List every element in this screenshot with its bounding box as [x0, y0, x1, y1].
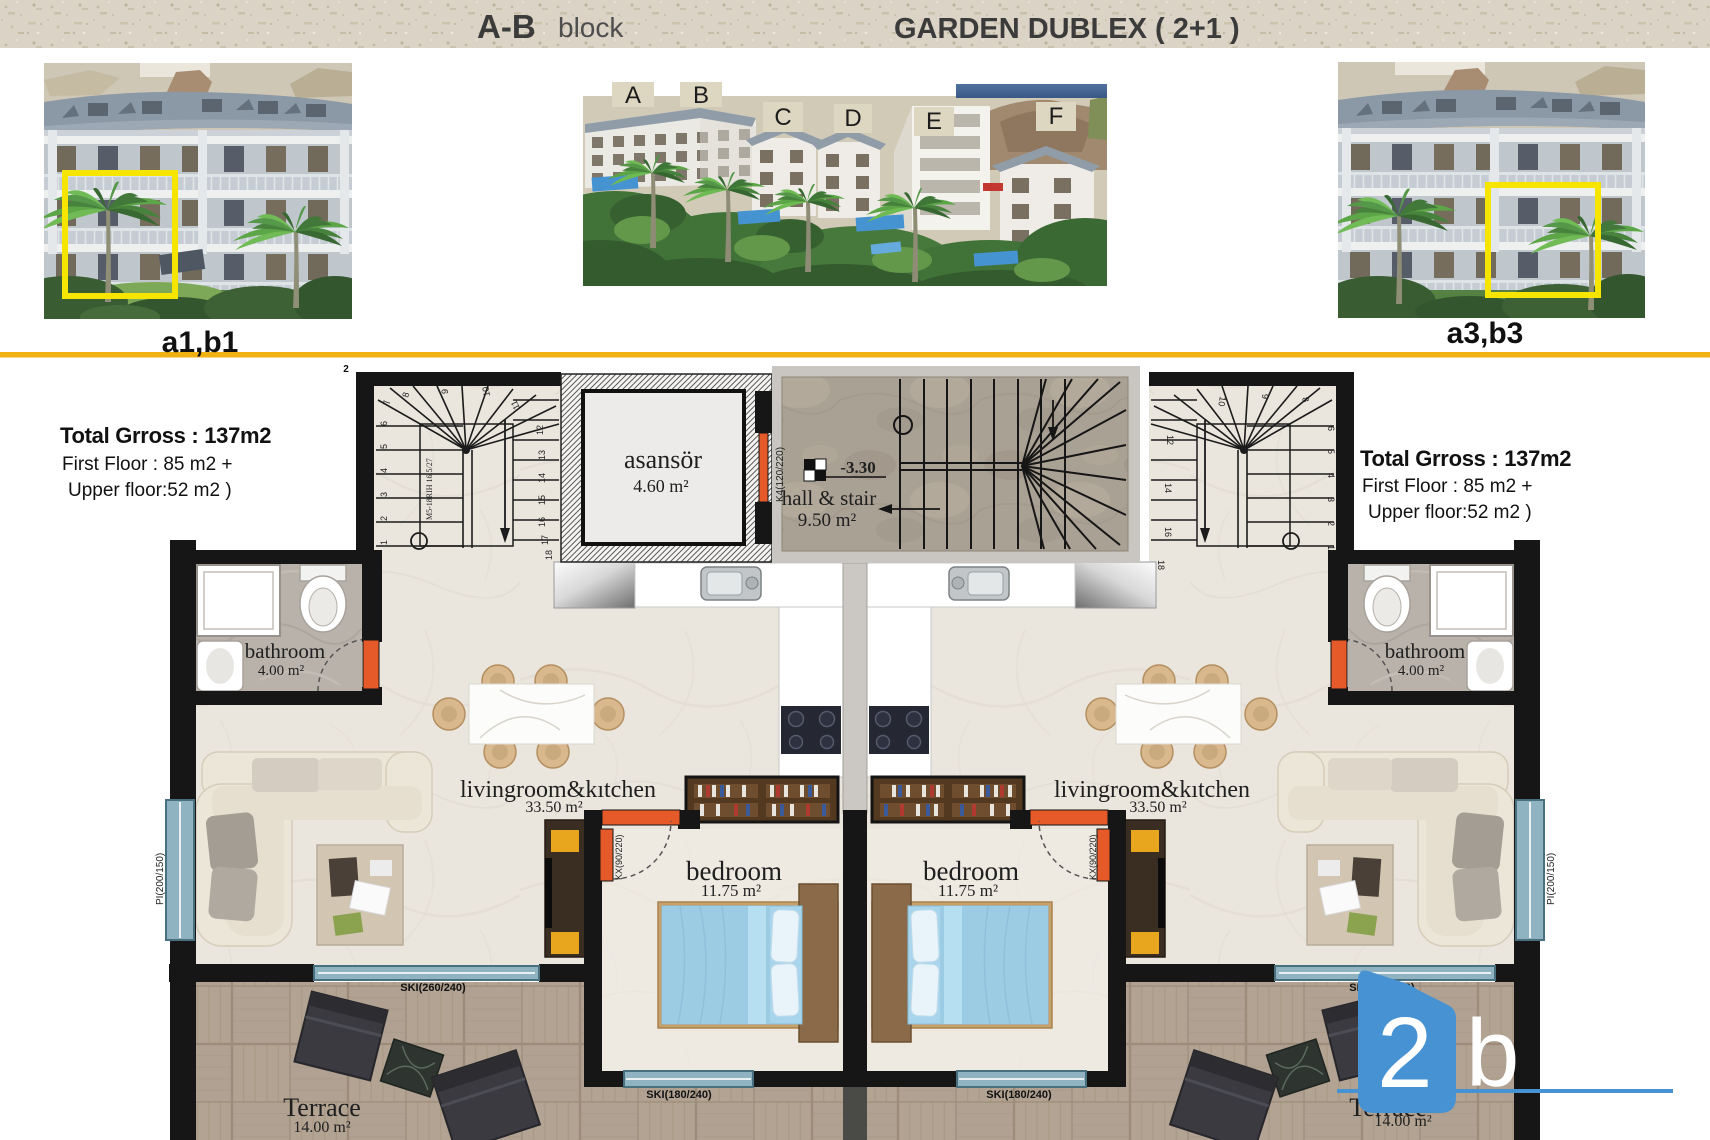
svg-text:18: 18 — [544, 550, 554, 560]
svg-text:4.00 m²: 4.00 m² — [1398, 663, 1445, 679]
svg-text:SKI(180/240): SKI(180/240) — [646, 1089, 712, 1101]
svg-text:14: 14 — [537, 473, 547, 483]
svg-text:16: 16 — [1163, 527, 1173, 537]
svg-text:2: 2 — [1377, 997, 1433, 1109]
svg-text:KX(90/220): KX(90/220) — [614, 834, 624, 880]
svg-text:D: D — [844, 105, 861, 132]
svg-text:5: 5 — [379, 444, 389, 449]
svg-text:Upper floor:52 m2 ): Upper floor:52 m2 ) — [68, 480, 232, 501]
svg-text:6: 6 — [1326, 426, 1336, 431]
svg-text:4.00 m²: 4.00 m² — [258, 663, 305, 679]
svg-text:M5-18RIH 16.5/27: M5-18RIH 16.5/27 — [425, 458, 434, 520]
svg-text:asansör: asansör — [624, 445, 702, 474]
svg-text:2: 2 — [379, 516, 389, 521]
svg-text:7: 7 — [382, 400, 392, 405]
svg-text:A: A — [625, 82, 641, 109]
svg-text:F: F — [1049, 103, 1064, 130]
svg-text:4: 4 — [379, 468, 389, 473]
svg-text:15: 15 — [537, 495, 547, 505]
svg-text:hall & stair: hall & stair — [782, 486, 876, 510]
svg-text:Upper floor:52 m2 ): Upper floor:52 m2 ) — [1368, 502, 1532, 523]
svg-text:2: 2 — [343, 364, 349, 375]
svg-text:B: B — [693, 82, 709, 109]
svg-text:13: 13 — [537, 450, 547, 460]
svg-text:bathroom: bathroom — [1385, 639, 1465, 663]
svg-text:3: 3 — [1326, 497, 1336, 502]
svg-text:4: 4 — [1326, 473, 1336, 478]
svg-text:A-B: A-B — [477, 8, 536, 45]
svg-text:17: 17 — [540, 535, 550, 545]
svg-text:10: 10 — [1216, 396, 1228, 408]
svg-text:E: E — [926, 108, 942, 135]
svg-text:a3,b3: a3,b3 — [1447, 317, 1524, 350]
svg-text:33.50 m²: 33.50 m² — [525, 799, 582, 816]
svg-text:bathroom: bathroom — [245, 639, 325, 663]
svg-text:14.00 m²: 14.00 m² — [1374, 1113, 1431, 1130]
svg-text:SKI(180/240): SKI(180/240) — [986, 1089, 1052, 1101]
svg-text:9: 9 — [440, 389, 450, 394]
svg-text:14.00 m²: 14.00 m² — [293, 1119, 350, 1136]
svg-text:Terrace: Terrace — [283, 1093, 361, 1122]
svg-text:2: 2 — [1326, 521, 1336, 526]
svg-text:9: 9 — [1260, 394, 1270, 399]
svg-text:K4(120/220): K4(120/220) — [775, 447, 786, 502]
svg-text:Total Grross : 137m2: Total Grross : 137m2 — [60, 423, 271, 448]
svg-text:GARDEN DUBLEX ( 2+1 ): GARDEN DUBLEX ( 2+1 ) — [894, 13, 1240, 45]
svg-text:First Floor : 85 m2 +: First Floor : 85 m2 + — [1362, 476, 1533, 497]
svg-text:11.75 m²: 11.75 m² — [701, 881, 761, 900]
svg-text:1: 1 — [379, 540, 389, 545]
svg-text:6: 6 — [379, 421, 389, 426]
svg-text:block: block — [558, 12, 624, 43]
svg-text:16: 16 — [537, 517, 547, 527]
svg-text:33.50 m²: 33.50 m² — [1129, 799, 1186, 816]
svg-text:-3.30: -3.30 — [840, 458, 875, 477]
svg-text:Total Grross : 137m2: Total Grross : 137m2 — [1360, 446, 1571, 471]
svg-text:9.50 m²: 9.50 m² — [798, 510, 857, 531]
svg-text:11.75 m²: 11.75 m² — [938, 881, 998, 900]
svg-text:PI(200/150): PI(200/150) — [1546, 853, 1557, 905]
svg-text:First Floor : 85 m2 +: First Floor : 85 m2 + — [62, 454, 233, 475]
svg-text:14: 14 — [1163, 483, 1173, 493]
svg-text:b: b — [1466, 1000, 1519, 1107]
svg-text:4.60 m²: 4.60 m² — [633, 476, 688, 496]
svg-text:5: 5 — [1326, 449, 1336, 454]
svg-text:18: 18 — [1156, 560, 1166, 570]
svg-text:KX(90/220): KX(90/220) — [1088, 834, 1098, 880]
svg-text:SKI(260/240): SKI(260/240) — [400, 982, 466, 994]
svg-text:PI(200/150): PI(200/150) — [155, 853, 166, 905]
svg-text:a1,b1: a1,b1 — [162, 326, 239, 359]
svg-text:10: 10 — [480, 386, 492, 398]
svg-text:12: 12 — [1165, 435, 1175, 445]
svg-text:C: C — [774, 104, 791, 131]
svg-text:3: 3 — [379, 492, 389, 497]
svg-text:12: 12 — [535, 425, 545, 435]
svg-text:1: 1 — [1326, 545, 1336, 550]
